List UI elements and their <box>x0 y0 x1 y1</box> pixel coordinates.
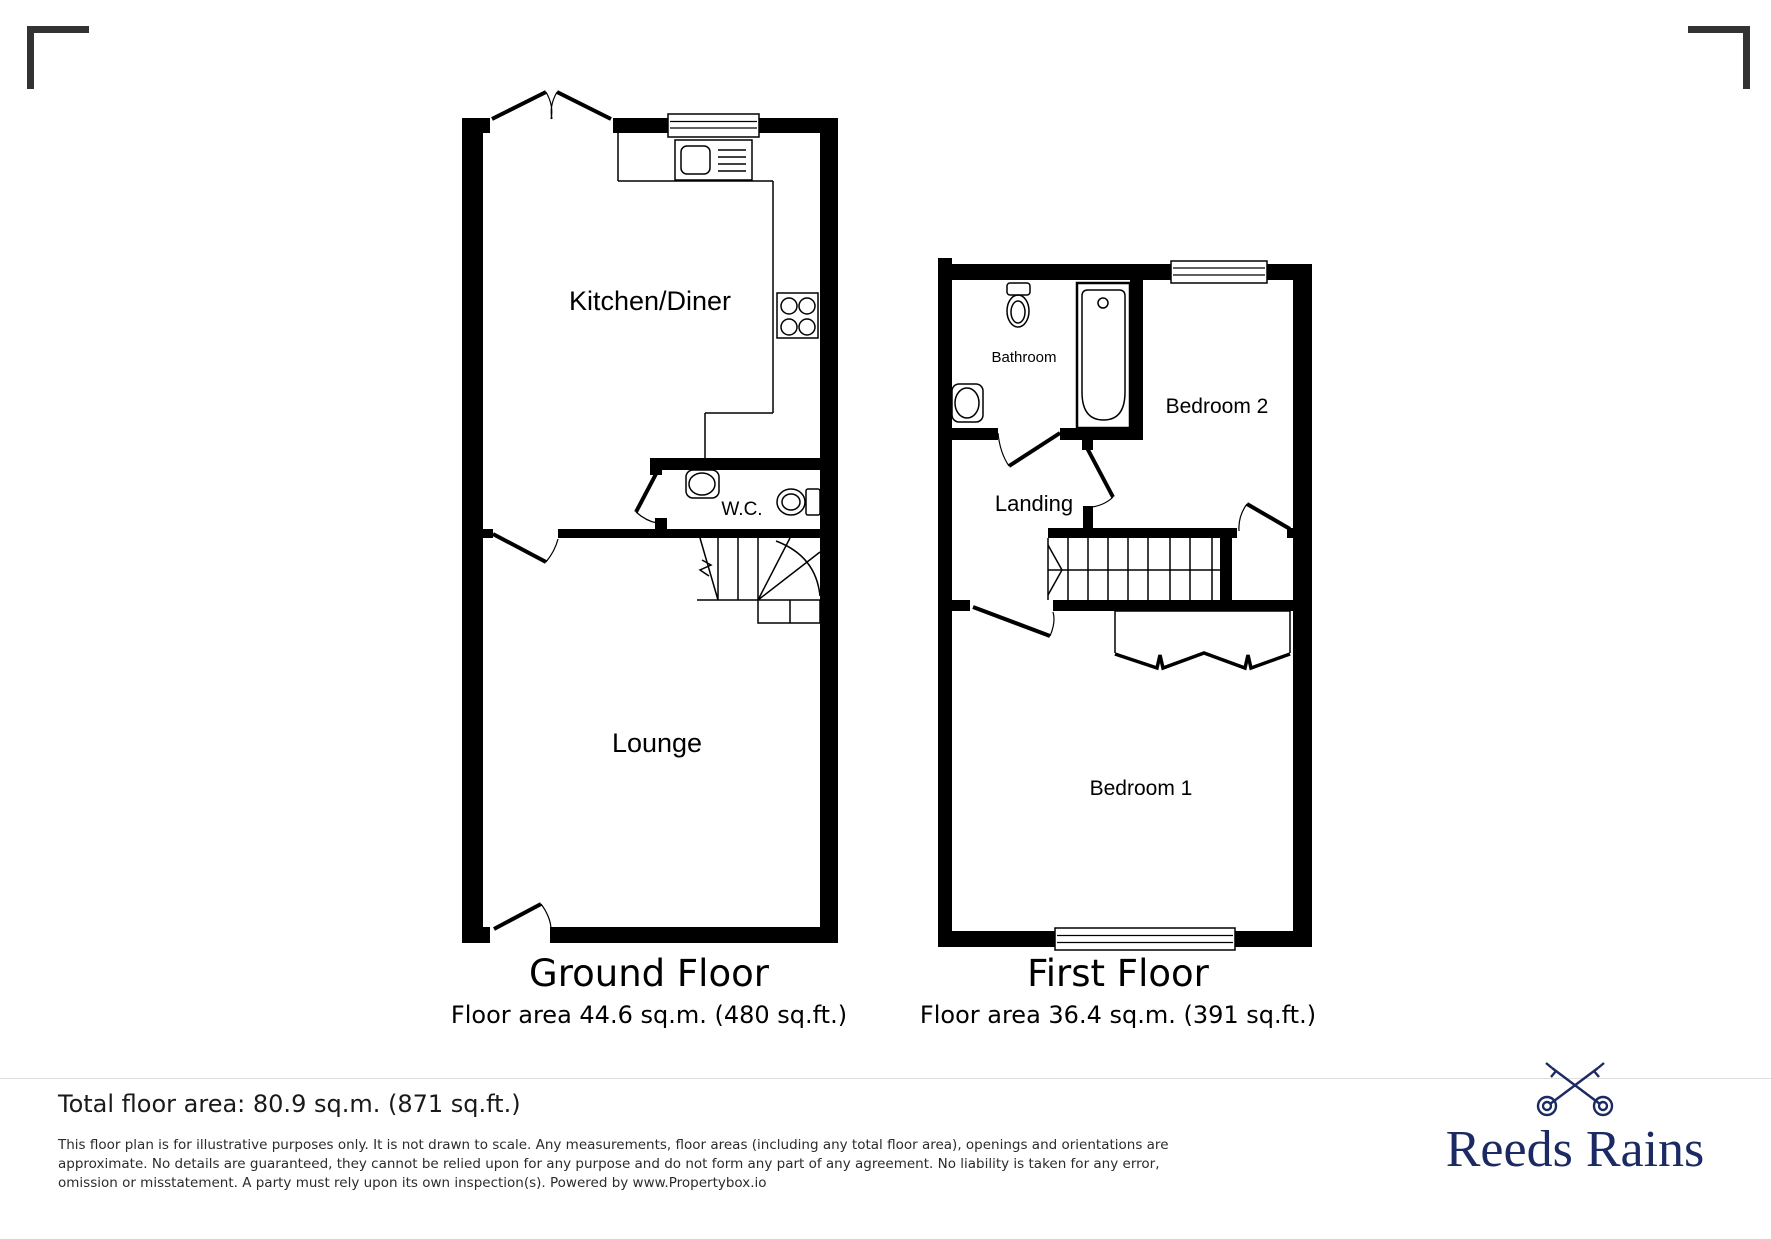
room-label-bedroom2: Bedroom 2 <box>1166 395 1269 418</box>
wall-segment <box>938 931 1057 947</box>
wall-stub <box>1083 506 1093 528</box>
first-floor-plan: Bathroom Bedroom 2 Landing Bedroom 1 Fir… <box>920 258 1316 1029</box>
wall-segment <box>938 258 952 947</box>
ground-windows <box>668 114 759 137</box>
wardrobe-icon <box>1115 611 1290 668</box>
bedroom2-door-icon <box>1086 446 1113 507</box>
crop-mark-top-left <box>31 30 90 90</box>
window-icon <box>1055 928 1235 950</box>
wall-stair-top <box>1048 528 1237 538</box>
window-icon <box>668 114 759 137</box>
ground-walls <box>462 118 838 943</box>
floorplan-page: Kitchen/Diner W.C. Lounge Ground Floor F… <box>0 0 1771 1239</box>
hob-icon <box>777 293 818 338</box>
brand-name: Reeds Rains <box>1430 1120 1720 1179</box>
wall-segment <box>820 118 838 943</box>
sink-drainer-icon <box>675 140 752 180</box>
ground-floor-area: Floor area 44.6 sq.m. (480 sq.ft.) <box>451 1001 847 1029</box>
total-floor-area: Total floor area: 80.9 sq.m. (871 sq.ft.… <box>58 1090 521 1118</box>
wall-segment <box>462 118 483 943</box>
wc-door-icon <box>636 472 657 523</box>
room-label-lounge: Lounge <box>612 728 702 758</box>
wall-segment <box>550 927 838 943</box>
wall-segment <box>462 118 490 133</box>
wall-wc-top <box>650 458 820 470</box>
disclaimer-text: This floor plan is for illustrative purp… <box>58 1136 1208 1193</box>
wall-stub <box>483 529 493 538</box>
wc-toilet-icon <box>777 489 820 515</box>
wc-basin-icon <box>686 470 719 498</box>
floorplan-drawing: Kitchen/Diner W.C. Lounge Ground Floor F… <box>0 0 1771 1060</box>
ground-doors <box>492 92 657 929</box>
wall-segment <box>613 118 670 133</box>
french-door-icon <box>492 92 611 119</box>
room-label-landing: Landing <box>995 491 1073 516</box>
toilet-icon <box>1007 283 1030 327</box>
wall-divider <box>558 529 820 538</box>
first-floor-area: Floor area 36.4 sq.m. (391 sq.ft.) <box>920 1001 1316 1029</box>
wall-segment <box>938 264 1173 280</box>
wall-segment <box>1053 600 1293 611</box>
first-floor-title: First Floor <box>1027 952 1209 995</box>
wall-segment <box>462 927 490 943</box>
ground-floor-plan: Kitchen/Diner W.C. Lounge Ground Floor F… <box>451 92 847 1029</box>
wall-stub <box>1220 538 1232 600</box>
wall-bath-divider <box>1130 280 1143 440</box>
wall-segment <box>952 428 998 440</box>
bath-icon <box>1077 283 1130 428</box>
window-icon <box>1171 261 1267 283</box>
lounge-door-icon <box>493 534 558 562</box>
first-stairs-icon <box>1048 538 1220 600</box>
wall-segment <box>1060 428 1143 440</box>
wall-segment <box>952 600 970 611</box>
bedroom1-door-icon <box>973 607 1054 636</box>
front-door-icon <box>494 904 551 929</box>
stairs-top-door-icon <box>1239 504 1290 531</box>
wall-segment <box>1293 264 1312 947</box>
bathroom-door-icon <box>998 433 1060 466</box>
wall-segment <box>1233 931 1312 947</box>
crop-mark-top-right <box>1688 30 1747 90</box>
crossed-keys-icon <box>1520 1060 1630 1118</box>
room-label-kitchen-diner: Kitchen/Diner <box>569 286 731 316</box>
agency-logo: Reeds Rains <box>1430 1060 1720 1179</box>
crop-marks <box>31 30 1747 1061</box>
ground-floor-title: Ground Floor <box>529 952 770 995</box>
room-label-bathroom: Bathroom <box>991 349 1056 366</box>
ground-stairs-icon <box>697 538 820 623</box>
room-label-bedroom1: Bedroom 1 <box>1090 777 1193 800</box>
room-label-wc: W.C. <box>721 499 762 520</box>
basin-icon <box>952 384 983 422</box>
